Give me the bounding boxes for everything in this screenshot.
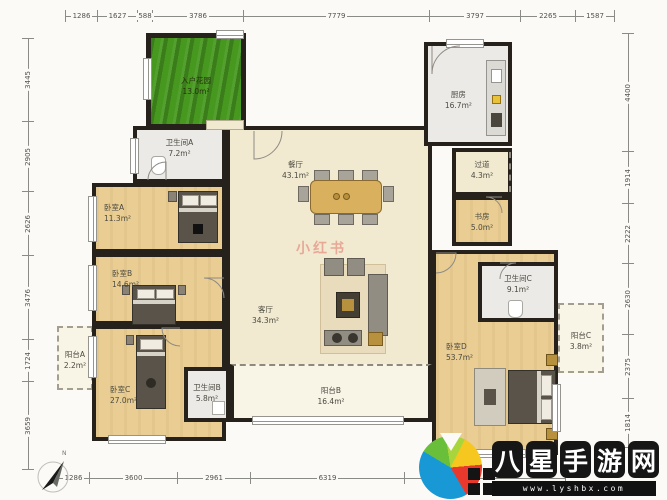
room-area: 43.1m² bbox=[282, 171, 309, 182]
room-study: 书房 5.0m² bbox=[452, 196, 512, 246]
dimension-chain-top: 1286 1627 588 3786 7779 3797 2265 1587 bbox=[65, 10, 615, 22]
room-kitchen: 厨房 16.7m² bbox=[424, 42, 512, 146]
room-area: 11.3m² bbox=[104, 214, 131, 225]
room-label-hallway: 过道 4.3m² bbox=[471, 160, 493, 182]
dimension-segment: 1914 bbox=[622, 151, 634, 203]
room-area: 5.8m² bbox=[193, 394, 221, 405]
dimension-segment: 3786 bbox=[152, 10, 243, 22]
window bbox=[88, 196, 97, 242]
room-label-bedB: 卧室B 14.6m² bbox=[112, 269, 139, 291]
room-label-dining: 餐厅 43.1m² bbox=[282, 160, 309, 182]
nightstand-icon bbox=[178, 285, 186, 295]
window bbox=[108, 435, 166, 444]
sofa-chaise-icon bbox=[368, 274, 388, 336]
kitchen-counter-icon bbox=[486, 60, 506, 136]
room-area: 53.7m² bbox=[446, 353, 473, 364]
room-area: 16.4m² bbox=[317, 397, 344, 408]
hallway-opening bbox=[509, 152, 511, 192]
toilet-icon bbox=[151, 156, 166, 175]
dimension-segment: 2961 bbox=[177, 472, 250, 484]
room-area: 4.3m² bbox=[471, 171, 493, 182]
room-name: 卧室A bbox=[104, 203, 131, 214]
site-name-char: 手 bbox=[560, 441, 591, 478]
window bbox=[88, 336, 97, 378]
window bbox=[252, 416, 404, 425]
room-name: 过道 bbox=[471, 160, 493, 171]
window bbox=[88, 265, 97, 311]
dim-value: 2905 bbox=[25, 146, 32, 168]
room-label-bathC: 卫生间C 9.1m² bbox=[504, 274, 532, 296]
room-name: 卧室D bbox=[446, 342, 473, 353]
room-label-bathB: 卫生间B 5.8m² bbox=[193, 383, 221, 405]
floorplan-canvas: 1286 1627 588 3786 7779 3797 2265 1587 1… bbox=[0, 0, 667, 500]
dimension-chain-right: 4400 1914 2222 2630 2375 1814 bbox=[622, 33, 634, 448]
site-watermark-name: 八星手游网 bbox=[492, 441, 659, 478]
bed-icon bbox=[178, 191, 218, 243]
dim-value: 2630 bbox=[625, 288, 632, 310]
dim-value: 3797 bbox=[464, 13, 486, 20]
nightstand-icon bbox=[168, 191, 177, 202]
dim-value: 1286 bbox=[71, 13, 93, 20]
room-label-balcA: 阳台A 2.2m² bbox=[64, 350, 86, 372]
room-label-garden: 入户花园 13.0m² bbox=[181, 76, 211, 98]
dimension-segment: 1587 bbox=[575, 10, 615, 22]
side-table-icon bbox=[368, 332, 383, 346]
nightstand-icon bbox=[546, 354, 558, 366]
dimension-segment: 3445 bbox=[22, 38, 34, 121]
dim-value: 7779 bbox=[326, 13, 348, 20]
dim-value: 2626 bbox=[25, 213, 32, 235]
room-name: 卫生间A bbox=[166, 138, 194, 149]
room-label-bedA: 卧室A 11.3m² bbox=[104, 203, 131, 225]
window bbox=[130, 138, 139, 174]
dimension-segment: 1627 bbox=[97, 10, 137, 22]
room-label-study: 书房 5.0m² bbox=[471, 212, 493, 234]
room-balcony-b: 阳台B 16.4m² bbox=[230, 364, 432, 422]
dimension-segment: 3600 bbox=[89, 472, 177, 484]
chair-icon bbox=[338, 214, 354, 225]
dimension-segment: 2222 bbox=[622, 203, 634, 263]
dimension-segment: 6319 bbox=[250, 472, 404, 484]
window bbox=[143, 58, 152, 100]
compass-icon bbox=[30, 452, 76, 498]
room-area: 3.8m² bbox=[570, 342, 592, 353]
dim-value: 3659 bbox=[25, 415, 32, 437]
site-logo-squares-icon bbox=[468, 468, 495, 495]
room-bedroom-b: 卧室B 14.6m² bbox=[92, 253, 226, 325]
dim-value: 2961 bbox=[203, 475, 225, 482]
dim-value: 588 bbox=[136, 13, 153, 20]
table-decor-icon bbox=[343, 193, 350, 200]
dim-value: 3476 bbox=[25, 287, 32, 309]
room-area: 34.3m² bbox=[252, 316, 279, 327]
stool-icon bbox=[332, 333, 342, 343]
site-name-char: 网 bbox=[628, 441, 659, 478]
room-label-balcB: 阳台B 16.4m² bbox=[317, 386, 344, 408]
room-name: 书房 bbox=[471, 212, 493, 223]
dimension-segment: 1286 bbox=[65, 10, 97, 22]
sofa-icon bbox=[347, 258, 365, 276]
entry-step bbox=[206, 120, 244, 130]
window bbox=[446, 39, 484, 48]
room-name: 卧室C bbox=[110, 385, 137, 396]
room-bathroom-c: 卫生间C 9.1m² bbox=[478, 262, 558, 322]
room-balcony-c: 阳台C 3.8m² bbox=[558, 303, 604, 373]
dimension-segment: 3476 bbox=[22, 255, 34, 339]
room-name: 餐厅 bbox=[282, 160, 309, 171]
room-name: 卧室B bbox=[112, 269, 139, 280]
table-decor-icon bbox=[333, 193, 340, 200]
room-area: 2.2m² bbox=[64, 361, 86, 372]
dim-value: 3786 bbox=[187, 13, 209, 20]
room-bathroom-b: 卫生间B 5.8m² bbox=[184, 367, 230, 422]
dim-value: 1627 bbox=[107, 13, 129, 20]
dimension-segment: 2265 bbox=[520, 10, 575, 22]
dimension-segment: 1724 bbox=[22, 339, 34, 381]
dimension-chain-left: 3445 2905 2626 3476 1724 3659 bbox=[22, 38, 34, 470]
room-bathroom-a: 卫生间A 7.2m² bbox=[133, 126, 226, 183]
room-name: 卫生间B bbox=[193, 383, 221, 394]
room-name: 卫生间C bbox=[504, 274, 532, 285]
stool-icon bbox=[348, 333, 358, 343]
dimension-segment: 2626 bbox=[22, 191, 34, 255]
bed-icon bbox=[132, 285, 176, 325]
window bbox=[216, 30, 244, 39]
dim-value: 1724 bbox=[25, 350, 32, 372]
dim-value: 6319 bbox=[317, 475, 339, 482]
compass-north-label: N bbox=[62, 450, 67, 457]
dim-value: 1587 bbox=[584, 13, 606, 20]
room-name: 阳台A bbox=[64, 350, 86, 361]
room-area: 5.0m² bbox=[471, 223, 493, 234]
dim-value: 1914 bbox=[625, 167, 632, 189]
dimension-segment: 588 bbox=[137, 10, 152, 22]
center-watermark: 小红书 bbox=[296, 238, 347, 258]
room-bedroom-a: 卧室A 11.3m² bbox=[92, 183, 226, 253]
site-watermark-url: www.lyshbx.com bbox=[492, 481, 656, 496]
dimension-segment: 3797 bbox=[429, 10, 520, 22]
room-label-kitchen: 厨房 16.7m² bbox=[445, 90, 472, 112]
site-name-char: 游 bbox=[594, 441, 625, 478]
chair-icon bbox=[314, 214, 330, 225]
site-name-char: 星 bbox=[526, 441, 557, 478]
bed-icon bbox=[136, 335, 166, 409]
room-area: 16.7m² bbox=[445, 101, 472, 112]
window bbox=[552, 384, 561, 432]
room-area: 7.2m² bbox=[166, 149, 194, 160]
dim-value: 3600 bbox=[123, 475, 145, 482]
wardrobe-icon bbox=[474, 368, 506, 426]
room-entry-garden: 入户花园 13.0m² bbox=[146, 33, 246, 129]
site-name-char: 八 bbox=[492, 441, 523, 478]
room-label-bedC: 卧室C 27.0m² bbox=[110, 385, 137, 407]
chair-icon bbox=[383, 186, 394, 202]
toilet-icon bbox=[508, 300, 523, 318]
chair-icon bbox=[362, 214, 378, 225]
bed-icon bbox=[508, 370, 556, 424]
dim-value: 1814 bbox=[625, 412, 632, 434]
room-hallway: 过道 4.3m² bbox=[452, 148, 512, 196]
dimension-segment: 2905 bbox=[22, 121, 34, 191]
dim-value: 2222 bbox=[625, 223, 632, 245]
dim-value: 4400 bbox=[625, 82, 632, 104]
room-name: 阳台C bbox=[570, 331, 592, 342]
nightstand-icon bbox=[126, 335, 134, 345]
room-label-balcC: 阳台C 3.8m² bbox=[570, 331, 592, 353]
sofa-icon bbox=[324, 258, 344, 276]
dimension-segment: 7779 bbox=[243, 10, 429, 22]
chair-icon bbox=[298, 186, 309, 202]
room-area: 27.0m² bbox=[110, 396, 137, 407]
dim-value: 2265 bbox=[537, 13, 559, 20]
room-label-bathA: 卫生间A 7.2m² bbox=[166, 138, 194, 160]
dimension-segment: 4400 bbox=[622, 33, 634, 151]
room-label-bedD: 卧室D 53.7m² bbox=[446, 342, 473, 364]
room-name: 阳台B bbox=[317, 386, 344, 397]
coffee-table-decor-icon bbox=[342, 299, 354, 311]
dimension-segment: 2630 bbox=[622, 263, 634, 334]
dim-value: 2375 bbox=[625, 356, 632, 378]
room-name: 客厅 bbox=[252, 305, 279, 316]
room-area: 14.6m² bbox=[112, 280, 139, 291]
room-name: 厨房 bbox=[445, 90, 472, 101]
dimension-segment: 2375 bbox=[622, 334, 634, 398]
room-name: 入户花园 bbox=[181, 76, 211, 87]
room-area: 13.0m² bbox=[181, 87, 211, 98]
dim-value: 3445 bbox=[25, 69, 32, 91]
room-area: 9.1m² bbox=[504, 285, 532, 296]
room-label-living: 客厅 34.3m² bbox=[252, 305, 279, 327]
